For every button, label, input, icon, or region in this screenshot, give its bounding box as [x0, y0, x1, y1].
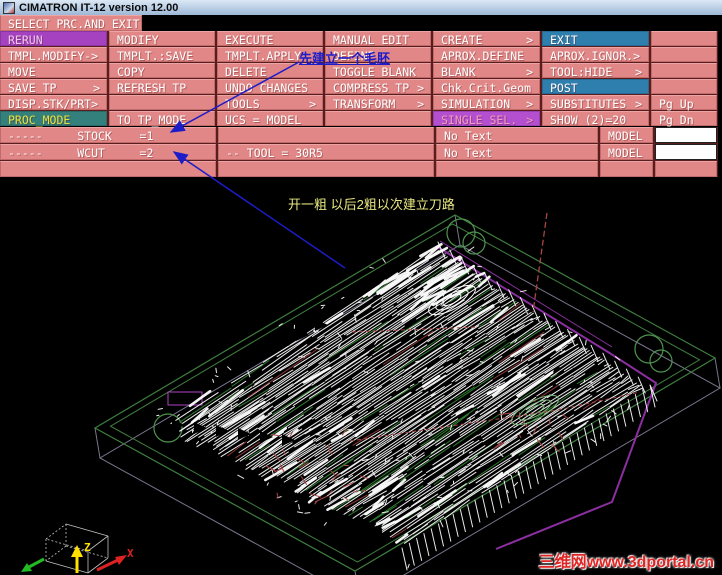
status-cell-empty: [218, 127, 434, 143]
menu-item-simulation[interactable]: SIMULATION>: [433, 95, 540, 110]
submenu-arrow-icon: >: [93, 81, 100, 95]
status-cell-model[interactable]: MODEL: [600, 144, 653, 160]
submenu-arrow-icon: >: [526, 65, 533, 79]
menu-item-ucs-model[interactable]: UCS = MODEL: [217, 111, 323, 126]
status-cell-empty: [600, 161, 653, 177]
menu-item-refresh-tp[interactable]: REFRESH TP: [109, 79, 215, 94]
menu-item-aprox-ignor[interactable]: APROX.IGNOR.>: [542, 47, 649, 62]
menu-item-tools[interactable]: TOOLS>: [217, 95, 323, 110]
prompt-select-prc-and-exit: SELECT PRC.AND EXIT: [0, 15, 142, 31]
status-cell-empty: [655, 161, 717, 177]
menu-item-pg-dn[interactable]: Pg Dn: [651, 111, 717, 126]
menu-item-empty: [651, 47, 717, 62]
cimatron-window: CIMATRON IT-12 version 12.00 SELECT PRC.…: [0, 0, 722, 575]
status-color-box: [655, 144, 717, 160]
submenu-arrow-icon: >: [417, 97, 424, 111]
submenu-arrow-icon: >: [417, 81, 424, 95]
prompt-row: SELECT PRC.AND EXIT: [0, 15, 722, 31]
menu-item-to-tp-mode[interactable]: TO TP_MODE: [109, 111, 215, 126]
menu-item-pg-up[interactable]: Pg Up: [651, 95, 717, 110]
submenu-arrow-icon: >: [635, 97, 642, 111]
menu-item-tmplt-save[interactable]: TMPLT.:SAVE: [109, 47, 215, 62]
annotation-blue-note: 先建立一个毛胚: [299, 51, 390, 66]
menu-item-empty: [109, 95, 215, 110]
menu-item-empty: [651, 63, 717, 78]
menu-item-show-2-20[interactable]: SHOW (2)=20: [542, 111, 649, 126]
menu-item-transform[interactable]: TRANSFORM>: [325, 95, 431, 110]
submenu-arrow-icon: >: [526, 97, 533, 111]
menu-item-modify[interactable]: MODIFY: [109, 31, 215, 46]
status-cell-no-text[interactable]: No Text: [436, 127, 598, 143]
menu-item-single-sel[interactable]: SINGLE SEL.>: [433, 111, 540, 126]
menu-item-save-tp[interactable]: SAVE TP>: [0, 79, 107, 94]
menu-item-post[interactable]: POST: [542, 79, 649, 94]
menu-item-compress-tp[interactable]: COMPRESS TP>: [325, 79, 431, 94]
status-cell-wcut-2[interactable]: ----- WCUT =2: [0, 144, 216, 160]
menu-item-rerun[interactable]: RERUN: [0, 31, 107, 46]
menu-item-manual-edit[interactable]: MANUAL EDIT: [325, 31, 431, 46]
status-cell-tool-30r5[interactable]: -- TOOL = 30R5: [218, 144, 434, 160]
menu-item-copy[interactable]: COPY: [109, 63, 215, 78]
menu-item-empty: [651, 31, 717, 46]
menu-item-aprox-define[interactable]: APROX.DEFINE: [433, 47, 540, 62]
window-title: CIMATRON IT-12 version 12.00: [19, 2, 178, 14]
menu-item-exit[interactable]: EXIT: [542, 31, 649, 46]
menu-item-substitutes[interactable]: SUBSTITUTES>: [542, 95, 649, 110]
watermark-text: 三维网www.3dportal.cn: [539, 554, 714, 572]
submenu-arrow-icon: >: [309, 97, 316, 111]
status-grid: ----- STOCK =1No TextMODEL----- WCUT =2-…: [0, 127, 718, 177]
status-cell-stock-1[interactable]: ----- STOCK =1: [0, 127, 216, 143]
menu-item-empty: [651, 79, 717, 94]
menu-item-proc-mode[interactable]: PROC_MODE: [0, 111, 107, 126]
menu-item-disp-stk-prt[interactable]: DISP.STK/PRT>: [0, 95, 107, 110]
submenu-arrow-icon: >: [526, 113, 533, 127]
app-icon: [3, 2, 15, 14]
menu-item-blank[interactable]: BLANK>: [433, 63, 540, 78]
status-cell-model[interactable]: MODEL: [600, 127, 653, 143]
menu-item-empty: [325, 111, 431, 126]
status-cell-empty: [436, 161, 598, 177]
viewport-3d[interactable]: [0, 178, 722, 575]
menu-item-tmpl-modify[interactable]: TMPL.MODIFY->: [0, 47, 107, 62]
title-bar: CIMATRON IT-12 version 12.00: [0, 0, 722, 15]
menu-item-tool-hide[interactable]: TOOL:HIDE>: [542, 63, 649, 78]
menu-item-execute[interactable]: EXECUTE: [217, 31, 323, 46]
status-cell-no-text[interactable]: No Text: [436, 144, 598, 160]
menu-grid: RERUNMODIFYEXECUTEMANUAL EDITCREATE>EXIT…: [0, 31, 718, 126]
menu-item-undo-changes[interactable]: UNDO CHANGES: [217, 79, 323, 94]
menu-item-chk-crit-geom[interactable]: Chk.Crit.Geom: [433, 79, 540, 94]
annotation-yellow-note: 开一粗 以后2粗以次建立刀路: [288, 197, 455, 212]
submenu-arrow-icon: >: [526, 33, 533, 47]
status-cell-empty: [218, 161, 434, 177]
status-cell-empty: [0, 161, 216, 177]
menu-item-move[interactable]: MOVE: [0, 63, 107, 78]
status-color-box: [655, 127, 717, 143]
submenu-arrow-icon: >: [635, 65, 642, 79]
menu-item-create[interactable]: CREATE>: [433, 31, 540, 46]
